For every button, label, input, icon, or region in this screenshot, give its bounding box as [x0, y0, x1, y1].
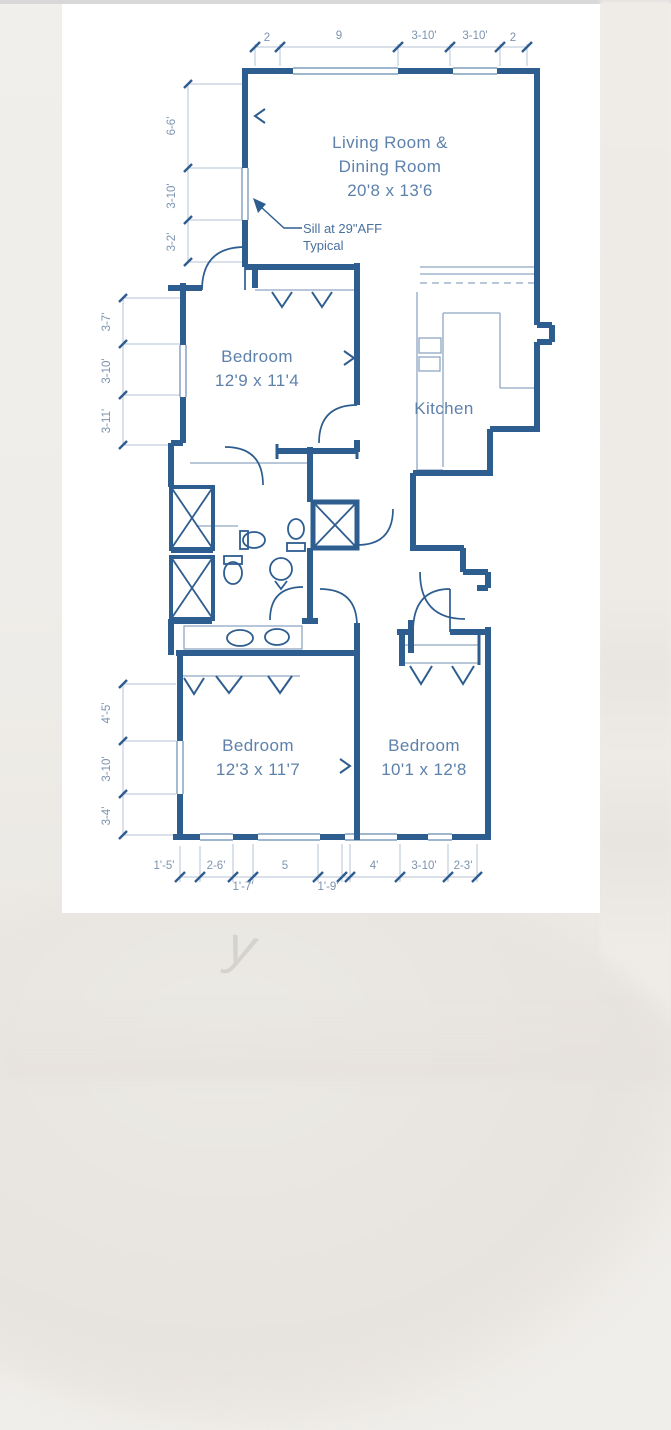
- dim-label: 9: [336, 30, 342, 42]
- dim-label: 3-10': [411, 860, 436, 872]
- dim-label: 6-6': [166, 117, 178, 136]
- dim-label: 2: [264, 32, 270, 44]
- dim-label: 3-10': [462, 30, 487, 42]
- bedroom2-dimensions: 12'3 x 11'7: [216, 760, 300, 779]
- bedroom2-label: Bedroom: [222, 736, 294, 755]
- dim-label: 2-6': [207, 860, 226, 872]
- paper-sheet: [62, 4, 600, 913]
- dim-label: 3-11': [101, 409, 113, 433]
- living-dining-label-line1: Living Room &: [332, 133, 448, 152]
- dim-label: 4'-5': [101, 702, 113, 723]
- dim-label: 2: [510, 32, 516, 44]
- background-watermark: y: [219, 914, 263, 979]
- bedroom3-label: Bedroom: [388, 736, 460, 755]
- dim-label: 5: [282, 860, 288, 872]
- dim-labels-left-lower: 4'-5' 3-10' 3-4': [101, 702, 113, 825]
- bedroom3-dimensions: 10'1 x 12'8: [381, 760, 467, 779]
- dim-label: 3-10': [411, 30, 436, 42]
- living-dining-dimensions: 20'8 x 13'6: [347, 181, 433, 200]
- kitchen-label: Kitchen: [414, 399, 474, 418]
- dim-label: 4': [370, 860, 379, 872]
- dim-label: 1'-9': [317, 881, 338, 893]
- dim-labels-left-middle: 3-7' 3-10' 3-11': [101, 313, 113, 434]
- dim-label: 3-7': [101, 313, 113, 332]
- dim-label: 3-10': [101, 756, 113, 781]
- dim-label: 2-3': [454, 860, 473, 872]
- sill-note-line1: Sill at 29"AFF: [303, 221, 382, 236]
- dim-label: 1'-5': [153, 860, 174, 872]
- dim-label: 3-2': [166, 233, 178, 252]
- dim-label: 1'-7': [232, 881, 253, 893]
- sill-note-line2: Typical: [303, 238, 344, 253]
- bedroom1-dimensions: 12'9 x 11'4: [215, 371, 299, 390]
- living-dining-label-line2: Dining Room: [339, 157, 442, 176]
- bedroom1-label: Bedroom: [221, 347, 293, 366]
- floor-plan: y: [0, 0, 671, 1080]
- dim-label: 3-10': [166, 183, 178, 208]
- dim-label: 3-10': [101, 358, 113, 383]
- dim-label: 3-4': [101, 807, 113, 826]
